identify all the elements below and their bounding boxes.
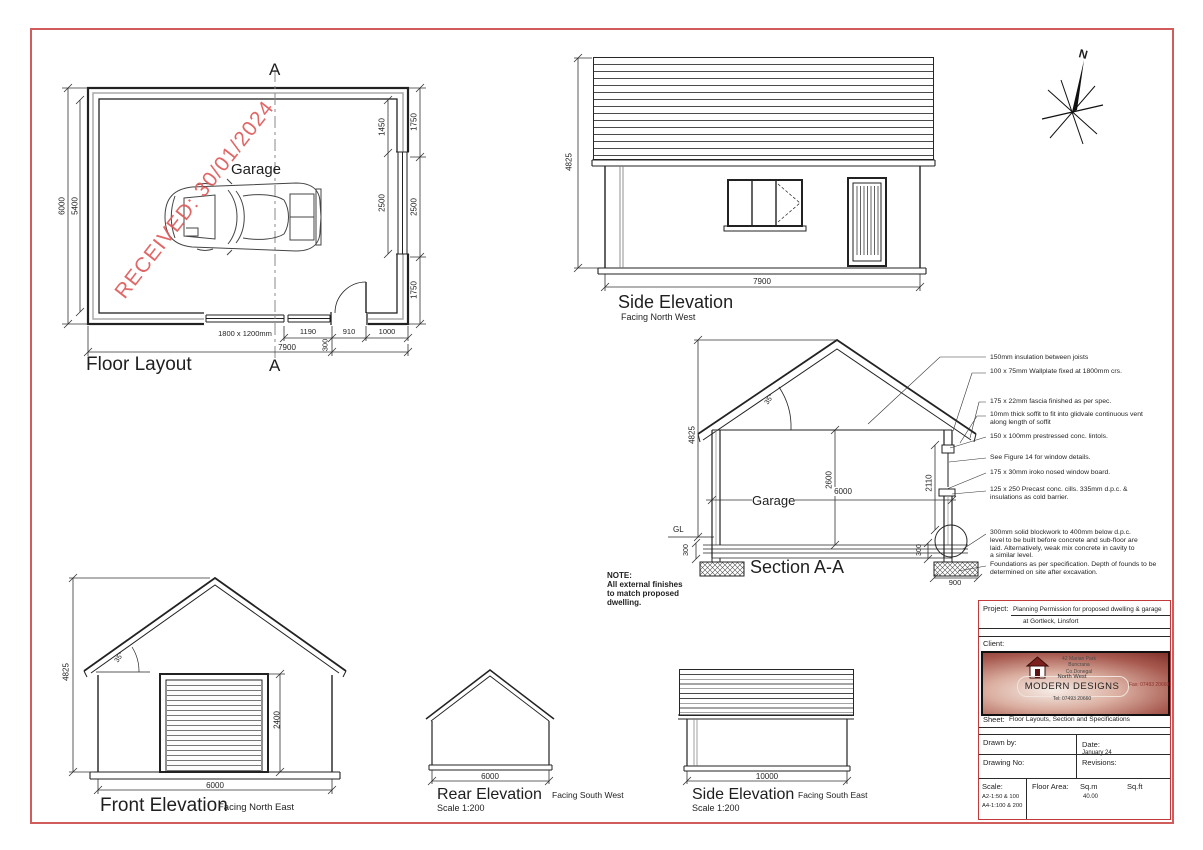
dim-1750-top: 1750: [409, 113, 418, 131]
dim-4825-nw: 4825: [564, 153, 573, 171]
project-line2: at Gortleck, Linsfort: [1023, 618, 1078, 625]
sheet-value: Floor Layouts, Section and Specification…: [1009, 716, 1130, 723]
divider: [979, 778, 1170, 779]
logo-tel: Tel: 07493 20660: [1053, 696, 1091, 702]
section-marker-bottom: A: [269, 356, 280, 376]
rear-elevation-subtitle: Facing South West: [552, 791, 624, 801]
annotation-wallplate: 100 x 75mm Wallplate fixed at 1800mm crs…: [990, 368, 1122, 376]
dim-300-left: 300: [683, 544, 691, 556]
note-body: All external finishes to match proposed …: [607, 580, 689, 608]
project-line1: Planning Permission for proposed dwellin…: [1013, 606, 1162, 613]
drawing-no-label: Drawing No:: [983, 758, 1024, 767]
dim-2400: 2400: [272, 711, 281, 729]
company-logo: 42 Marian Park Buncrana Co.Donegal North…: [981, 651, 1170, 716]
scale-label: Scale:: [982, 782, 1003, 791]
logo-name-line1: North West: [1058, 674, 1087, 680]
project-label: Project:: [983, 604, 1008, 613]
roof-angle-section: 35°: [764, 393, 777, 406]
dim-1450: 1450: [377, 118, 386, 136]
logo-fax: Fax: 07493 20660: [1129, 682, 1169, 688]
dim-6000-rear: 6000: [481, 772, 499, 781]
dim-7900-nw: 7900: [753, 277, 771, 286]
section-marker-top: A: [269, 60, 280, 80]
note-title: NOTE:: [607, 571, 632, 580]
annotation-blockwork: 300mm solid blockwork to 400mm below d.p…: [990, 529, 1140, 560]
side-elevation-nw-roof: [593, 57, 934, 160]
side-elevation-nw-title: Side Elevation: [618, 292, 733, 313]
dim-2600: 2600: [824, 471, 833, 489]
divider: [979, 727, 1170, 728]
dim-1000: 1000: [379, 328, 396, 337]
divider: [1026, 778, 1027, 819]
side-elevation-se-scale: Scale 1:200: [692, 803, 740, 813]
dim-300-right: 300: [916, 544, 924, 556]
section-aa-dimensions: [692, 336, 982, 582]
front-elevation-title: Front Elevation: [100, 795, 228, 817]
side-elevation-se-title: Side Elevation: [692, 786, 794, 804]
divider: [979, 628, 1170, 629]
annotation-foundations: Foundations as per specification. Depth …: [990, 561, 1160, 577]
floor-layout-title: Floor Layout: [86, 354, 192, 376]
annotation-window-details: See Figure 14 for window details.: [990, 454, 1091, 462]
dim-1190: 1190: [300, 328, 316, 337]
dim-5400-left: 5400: [70, 197, 79, 215]
dim-6000-left: 6000: [57, 197, 66, 215]
section-aa-title: Section A-A: [750, 557, 844, 578]
annotation-insulation: 150mm insulation between joists: [990, 354, 1088, 362]
title-block: Project: Planning Permission for propose…: [978, 600, 1171, 820]
rear-elevation-linework: [426, 670, 554, 785]
floor-area-label: Floor Area:: [1032, 782, 1069, 791]
dim-2110: 2110: [924, 474, 933, 491]
drawing-sheet: A A Garage RECEIVED: 30/01/2024 6000 540…: [0, 0, 1203, 850]
section-aa-linework: [668, 340, 978, 576]
rear-elevation-title: Rear Elevation: [437, 786, 542, 804]
roof-angle-front: 35°: [114, 651, 127, 664]
divider: [979, 734, 1170, 735]
dim-2500-outer: 2500: [409, 198, 418, 216]
dim-2500-inner: 2500: [377, 194, 386, 212]
dim-4825-front: 4825: [61, 663, 70, 681]
annotation-window-board: 175 x 30mm iroko nosed window board.: [990, 469, 1110, 477]
section-room-label: Garage: [752, 494, 795, 509]
scale-line1: A2-1:50 & 100: [982, 794, 1019, 800]
section-aa-leader-lines: [868, 357, 986, 571]
logo-address1: 42 Marian Park: [1062, 656, 1096, 662]
annotation-fascia: 175 x 22mm fascia finished as per spec.: [990, 398, 1111, 406]
divider: [1011, 615, 1170, 616]
annotation-soffit: 10mm thick soffit to fit into glidvale c…: [990, 411, 1156, 427]
divider: [1076, 734, 1077, 778]
sqft-label: Sq.ft: [1127, 782, 1142, 791]
date-label: Date:: [1082, 740, 1100, 749]
north-label: N: [1077, 47, 1089, 63]
divider: [979, 754, 1170, 755]
front-elevation-subtitle: Facing North East: [218, 803, 294, 814]
revisions-label: Revisions:: [1082, 758, 1117, 767]
divider: [979, 636, 1170, 637]
dim-1750-bottom: 1750: [409, 281, 418, 299]
annotation-cills: 125 x 250 Precast conc. cills. 335mm d.p…: [990, 486, 1150, 502]
window-size-label: 1800 x 1200mm: [218, 330, 272, 339]
dim-4825-section: 4825: [687, 426, 696, 444]
sheet-label: Sheet:: [983, 715, 1005, 724]
sqm-label: Sq.m: [1080, 782, 1098, 791]
dim-6000-front: 6000: [206, 781, 224, 790]
dim-900: 900: [949, 579, 962, 588]
dim-300-door: 300: [322, 339, 331, 352]
side-elevation-nw-subtitle: Facing North West: [621, 312, 695, 322]
drawn-by-label: Drawn by:: [983, 738, 1017, 747]
received-stamp: RECEIVED: 30/01/2024: [110, 96, 279, 303]
garage-roller-door: [167, 681, 261, 771]
side-elevation-se-roof: [679, 669, 854, 716]
date-value: January 24: [1082, 750, 1112, 756]
client-label: Client:: [983, 639, 1004, 648]
dim-910: 910: [343, 328, 356, 337]
scale-line2: A4-1:100 & 200: [982, 803, 1022, 809]
dim-6000-section: 6000: [834, 487, 852, 496]
ground-level-label: GL: [673, 525, 684, 534]
logo-name-line2: MODERN DESIGNS: [1025, 681, 1120, 692]
logo-address2: Buncrana: [1068, 662, 1089, 668]
dim-10000: 10000: [756, 772, 778, 781]
sqm-value: 40.00: [1083, 794, 1098, 800]
rear-elevation-scale: Scale 1:200: [437, 803, 485, 813]
dim-7900-plan: 7900: [278, 343, 296, 352]
annotation-lintols: 150 x 100mm prestressed conc. lintols.: [990, 433, 1108, 441]
north-compass: [1042, 60, 1103, 144]
side-elevation-se-subtitle: Facing South East: [798, 791, 867, 801]
